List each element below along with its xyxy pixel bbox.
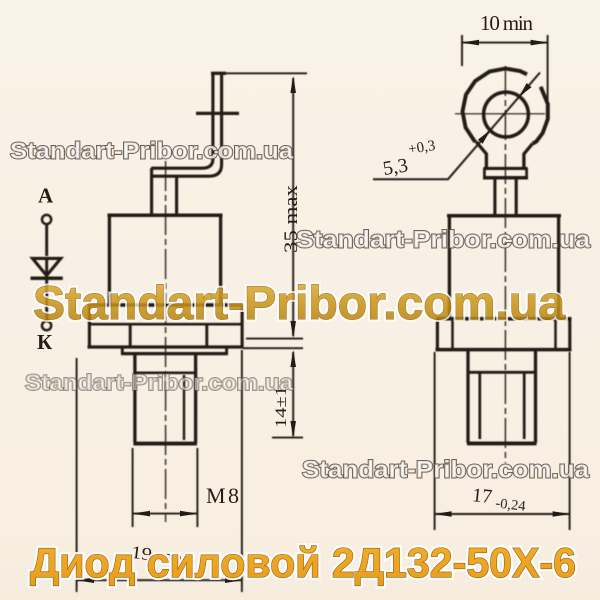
svg-text:-0,24: -0,24 [495,496,527,515]
svg-text:Standart-Pribor.com.ua: Standart-Pribor.com.ua [33,276,566,329]
svg-text:К: К [37,330,53,354]
svg-text:Standart-Pribor.com.ua: Standart-Pribor.com.ua [296,227,591,254]
svg-text:Диод силовой 2Д132-50Х-6: Диод силовой 2Д132-50Х-6 [30,539,576,586]
svg-text:10 min: 10 min [480,11,534,35]
svg-text:Standart-Pribor.com.ua: Standart-Pribor.com.ua [10,138,293,164]
svg-text:A: A [38,184,54,208]
svg-text:M8: M8 [206,483,239,508]
svg-text:Standart-Pribor.com.ua: Standart-Pribor.com.ua [25,370,294,395]
svg-text:17: 17 [471,484,493,508]
svg-text:5,3: 5,3 [381,154,409,180]
svg-text:Standart-Pribor.com.ua: Standart-Pribor.com.ua [302,457,590,484]
